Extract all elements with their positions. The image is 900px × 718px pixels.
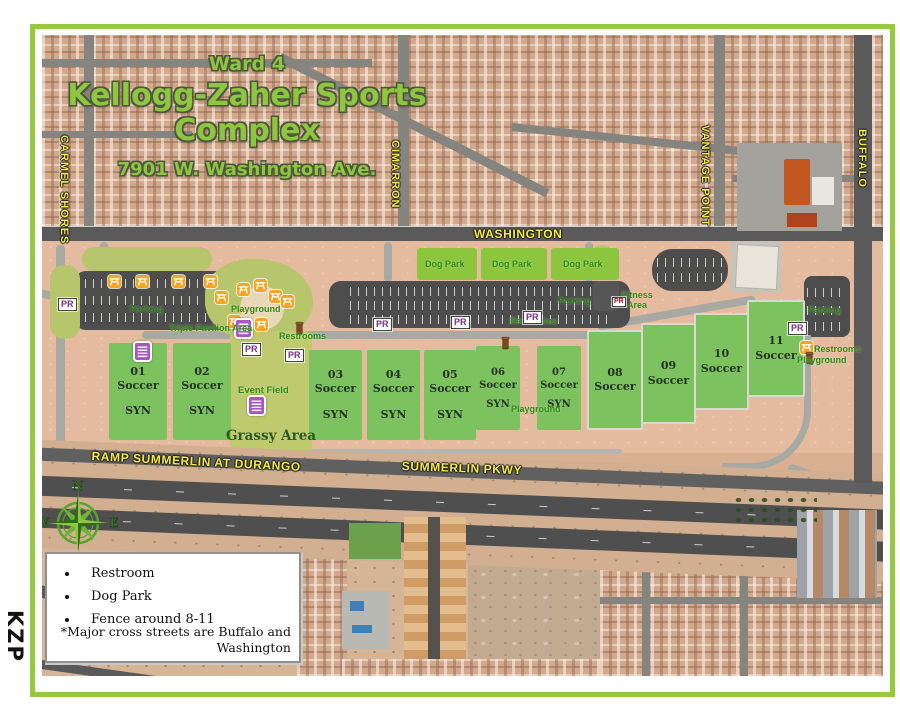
soccer-field-08: 08 Soccer — [587, 330, 643, 430]
soccer-field-03: 03 Soccer SYN — [309, 350, 362, 440]
compass-w: W — [42, 516, 49, 530]
commercial-building — [812, 177, 834, 205]
picnic-table-icon — [136, 275, 149, 288]
restrooms-label-west: Restrooms — [279, 331, 326, 341]
field-surface: SYN — [323, 408, 349, 422]
legend-note: *Major cross streets are Buffalo and Was… — [53, 624, 291, 657]
parking-lot-reccenter — [652, 249, 728, 291]
pr-marker: PR — [285, 349, 304, 362]
compass-n: N — [73, 479, 84, 493]
picnic-table-icon — [254, 279, 267, 292]
grassy-area-label: Grassy Area — [226, 428, 316, 444]
soccer-field-04: 04 Soccer SYN — [367, 350, 420, 440]
legend-box: Restroom Dog Park Fence around 8-11 *Maj… — [45, 552, 301, 663]
park-entrance — [384, 242, 392, 282]
field-name: Soccer — [594, 380, 635, 394]
field-name: Soccer — [755, 349, 796, 363]
pr-marker: PR — [451, 316, 470, 329]
picnic-table-icon — [255, 318, 268, 331]
soccer-field-05: 05 Soccer SYN — [424, 350, 476, 440]
parking-label-west: Parking — [130, 304, 163, 314]
picnic-table-icon — [108, 275, 121, 288]
field-number: 01 — [130, 365, 145, 379]
tree-cluster — [732, 495, 817, 523]
playground-label-east: Playground — [797, 355, 847, 365]
dog-park-label: Dog Park — [492, 259, 532, 269]
field-number: 09 — [661, 359, 676, 373]
field-number: 11 — [768, 334, 783, 348]
soccer-field-09: 09 Soccer — [641, 323, 696, 424]
legend-item: Dog Park — [79, 586, 299, 609]
soccer-field-07: 07 Soccer SYN — [537, 346, 581, 430]
restrooms-label-east: Restrooms — [814, 344, 861, 354]
ward-label: Ward 4 — [47, 53, 447, 75]
field-name: Soccer — [315, 382, 356, 396]
triple-pavilion-label: Triple Pavilion Area — [169, 323, 252, 333]
picnic-table-icon — [204, 275, 217, 288]
map-canvas: Dog Park Dog Park Dog Park 01 Soccer SYN… — [42, 35, 883, 676]
field-surface: SYN — [381, 408, 407, 422]
soccer-field-10: 10 Soccer — [694, 313, 749, 410]
compass-e: E — [109, 516, 118, 530]
pr-marker-fitness: PR — [612, 297, 626, 307]
kzp-watermark: KZP — [3, 610, 27, 663]
apartment-rows — [797, 510, 877, 598]
pr-marker: PR — [788, 322, 807, 335]
parking-label-east: Parking — [808, 305, 841, 315]
field-name: Soccer — [648, 374, 689, 388]
playground-label-central: Playground — [511, 404, 561, 414]
street-label-vantage-point: VANTAGE POINT — [699, 125, 711, 227]
pr-marker: PR — [373, 318, 392, 331]
pr-marker: PR — [58, 298, 77, 311]
field-name: Soccer — [479, 379, 517, 392]
grass-area — [82, 247, 212, 271]
picnic-table-icon — [237, 283, 250, 296]
street-label-washington: WASHINGTON — [474, 227, 562, 241]
dog-park-label: Dog Park — [563, 259, 603, 269]
residential-street — [600, 597, 883, 604]
picnic-table-icon — [281, 295, 294, 308]
event-field-label: Event Field — [238, 385, 289, 396]
soccer-field-11: 11 Soccer — [747, 300, 805, 397]
field-number: 02 — [194, 365, 209, 379]
page-title: Kellogg-Zaher Sports Complex — [47, 78, 447, 148]
sports-field-south — [349, 523, 401, 559]
legend-item: Restroom — [79, 563, 299, 586]
vantage-point-road — [714, 35, 725, 226]
rec-center-building — [735, 244, 779, 290]
commercial-building-red-roof — [787, 213, 817, 227]
field-name: Soccer — [181, 379, 222, 393]
field-number: 07 — [552, 366, 566, 379]
pr-marker: PR — [242, 343, 261, 356]
playground-label-west: Playground — [231, 304, 281, 314]
school-building — [342, 591, 390, 649]
field-surface: SYN — [486, 398, 510, 411]
pr-marker: PR — [523, 311, 542, 324]
apartment-complex — [404, 517, 466, 659]
parking-label-central: Parking — [558, 296, 591, 306]
map-title-block: Ward 4 Kellogg-Zaher Sports Complex 7901… — [47, 53, 447, 180]
field-number: 08 — [607, 366, 622, 380]
field-number: 10 — [714, 347, 729, 361]
street-label-buffalo: BUFFALO — [856, 129, 868, 188]
map-frame: Dog Park Dog Park Dog Park 01 Soccer SYN… — [30, 24, 895, 697]
field-number: 05 — [442, 368, 457, 382]
field-surface: SYN — [437, 408, 463, 422]
residential-strip-bottom — [342, 659, 600, 676]
dog-park-label: Dog Park — [425, 259, 465, 269]
soccer-field-02: 02 Soccer SYN — [173, 343, 231, 440]
picnic-table-icon — [172, 275, 185, 288]
commercial-building-orange-roof — [784, 159, 810, 205]
compass-rose: N E S W — [42, 479, 120, 563]
field-name: Soccer — [429, 382, 470, 396]
field-surface: SYN — [125, 404, 151, 418]
field-surface: SYN — [189, 404, 215, 418]
field-number: 06 — [491, 366, 505, 379]
field-name: Soccer — [117, 379, 158, 393]
address-label: 7901 W. Washington Ave. — [47, 159, 447, 180]
field-number: 03 — [328, 368, 343, 382]
field-name: Soccer — [540, 379, 578, 392]
restroom-icon — [247, 395, 266, 416]
field-name: Soccer — [373, 382, 414, 396]
picnic-table-icon — [215, 291, 228, 304]
buffalo-road — [854, 35, 872, 483]
field-number: 04 — [386, 368, 401, 382]
restroom-icon — [133, 341, 152, 362]
soccer-field-06: 06 Soccer SYN — [476, 346, 520, 430]
legend-list: Restroom Dog Park Fence around 8-11 — [79, 563, 299, 631]
residential-sliver-east — [872, 35, 883, 226]
trash-can-icon — [501, 336, 510, 350]
field-name: Soccer — [701, 362, 742, 376]
